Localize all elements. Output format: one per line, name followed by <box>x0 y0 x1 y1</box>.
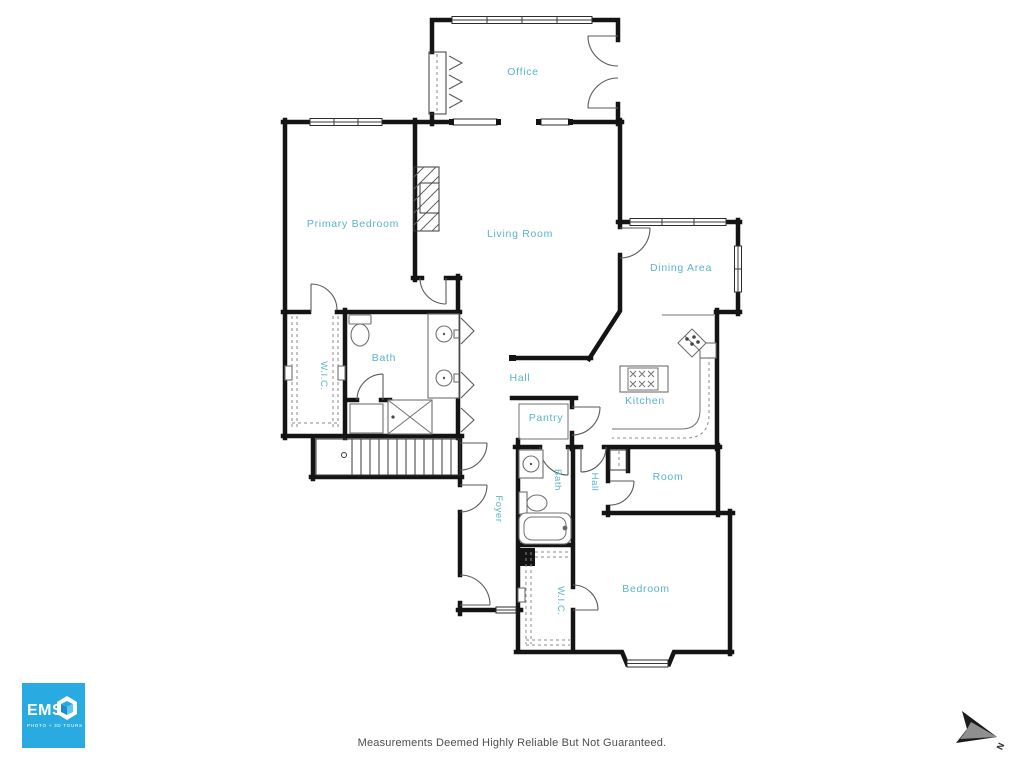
linen-cabinet <box>350 404 383 433</box>
primary-suite-door <box>420 278 446 304</box>
room-label-office: Office <box>507 66 538 78</box>
wall-mass <box>518 548 535 566</box>
foyer-sidelight <box>496 607 516 613</box>
stair-door <box>460 443 487 470</box>
windows <box>310 17 742 668</box>
primary-bath-fixtures <box>349 314 459 434</box>
toilet-bowl <box>527 495 547 511</box>
foyer-entry-door-2 <box>460 575 490 605</box>
room-label-bedroom: Bedroom <box>622 583 670 595</box>
dining-window-right <box>735 246 742 292</box>
wic2-door <box>573 585 598 610</box>
stairs <box>316 439 460 475</box>
foyer-entry-door-1 <box>460 485 487 512</box>
primary-bath-door <box>357 374 383 400</box>
room-label-bath-primary: Bath <box>372 352 396 364</box>
room-label-kitchen: Kitchen <box>625 395 665 407</box>
primary-bedroom-window <box>310 119 382 126</box>
north-label: N <box>994 741 1006 751</box>
logo-tagline: PHOTO + 3D TOURS <box>27 723 83 728</box>
room-label-hall-lower: Hall <box>589 473 600 492</box>
toilet-bowl <box>351 324 369 346</box>
room-label-pantry: Pantry <box>529 412 564 424</box>
dining-door <box>620 228 650 258</box>
floorplan-page: Office Primary Bedroom Living Room Dinin… <box>0 0 1024 768</box>
disclaimer-text: Measurements Deemed Highly Reliable But … <box>358 737 667 749</box>
bedroom-bay-window <box>627 660 668 667</box>
floorplan-svg: Office Primary Bedroom Living Room Dinin… <box>0 0 1024 768</box>
room-label-living-room: Living Room <box>487 228 553 240</box>
primary-wic-door <box>311 284 337 312</box>
room-label-wic-primary: W.I.C. <box>318 361 329 390</box>
pantry-door <box>572 407 600 435</box>
living-room-transoms <box>449 119 573 125</box>
office-closet <box>429 52 446 114</box>
wic-primary-shelving <box>285 316 345 428</box>
room-label-dining-area: Dining Area <box>650 262 712 274</box>
room-closet <box>610 450 627 470</box>
room-label-bath-secondary: Bath <box>552 469 563 491</box>
dining-window-top <box>630 219 726 226</box>
north-arrow: N <box>956 711 1006 751</box>
room-label-primary-bedroom: Primary Bedroom <box>307 218 399 230</box>
walls <box>283 20 740 664</box>
room-door <box>610 481 634 505</box>
toilet-tank <box>349 315 371 324</box>
room-label-room: Room <box>653 471 684 483</box>
room-label-wic-secondary: W.I.C. <box>555 586 566 615</box>
office-window <box>452 17 592 24</box>
secondary-bath-fixtures <box>519 450 571 544</box>
room-label-hall-upper: Hall <box>510 372 531 384</box>
fireplace <box>414 167 439 231</box>
office-french-doors <box>588 36 618 108</box>
hall-closet-doors <box>461 318 474 432</box>
room-label-foyer: Foyer <box>493 495 504 522</box>
office-bifold-doors <box>449 56 462 108</box>
toilet-tank <box>519 492 527 514</box>
hall2-door <box>581 447 606 472</box>
kitchen-island <box>620 366 668 392</box>
ems-logo: EMS PHOTO + 3D TOURS <box>22 683 85 748</box>
wall-cap <box>509 355 516 361</box>
